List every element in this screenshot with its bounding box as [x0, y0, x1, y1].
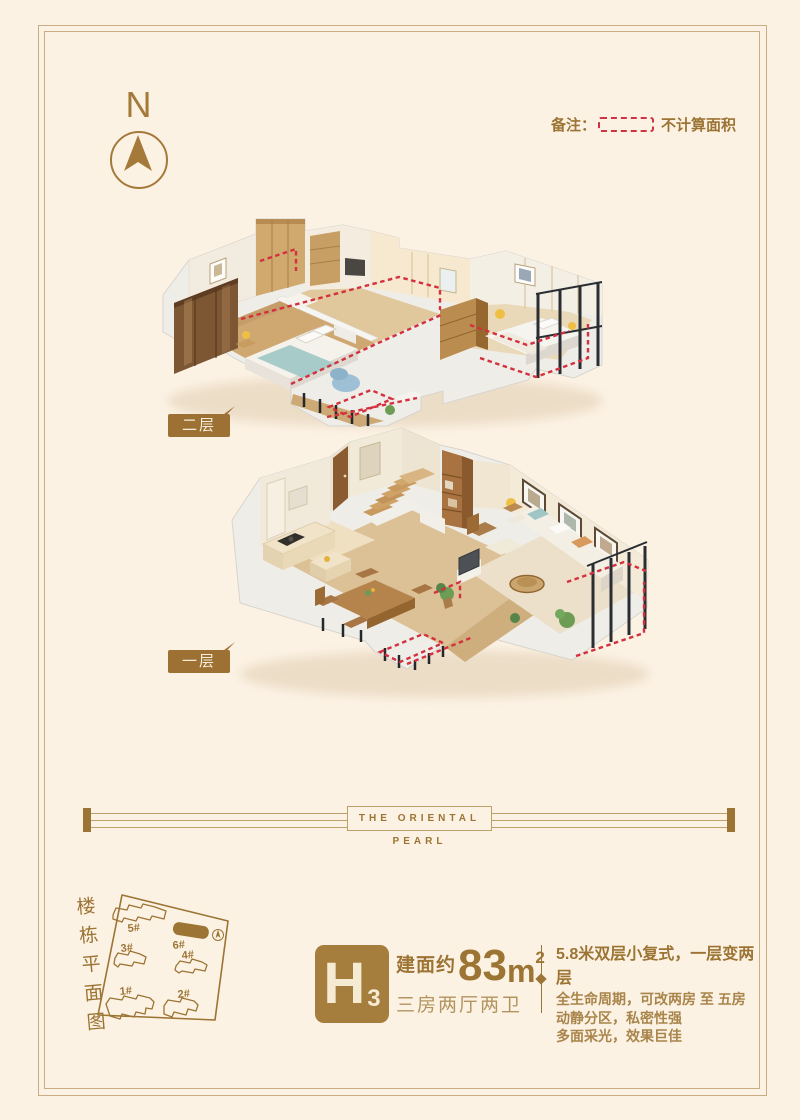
description-line: 全生命周期，可改两房 至 五房 [556, 992, 756, 1007]
unit-description: 5.8米双层小复式，一层变两层 全生命周期，可改两房 至 五房 动静分区，私密性… [556, 940, 756, 1044]
unit-area-block: 建面约 83 m 2 三房两厅两卫 [396, 948, 545, 1017]
divider-left-block [83, 808, 91, 832]
lower-floor-plan-illustration [215, 412, 680, 707]
mini-compass-icon [216, 930, 221, 939]
area-unit: m [507, 958, 535, 984]
description-line: 5.8米双层小复式，一层变两层 [556, 940, 756, 988]
upper-floor-plan-illustration [140, 198, 630, 440]
note-row: 备注： 不计算面积 [551, 114, 736, 135]
lower-floor-badge: 一层 [168, 650, 230, 673]
building-label: 4# [181, 949, 194, 962]
compass-north-letter: N [108, 84, 170, 126]
building-label: 5# [127, 922, 140, 935]
compass-arrow-icon [110, 128, 170, 188]
site-plan-map: 5# 6# 3# 4# 1# 2# [70, 878, 260, 1043]
note-text: 不计算面积 [661, 114, 736, 135]
note-label: 备注： [551, 114, 596, 135]
divider-brand-text: THE ORIENTAL PEARL [347, 806, 492, 831]
divider-right-block [727, 808, 735, 832]
description-line: 多面采光，效果巨佳 [556, 1029, 756, 1044]
unit-code-sub: 3 [367, 985, 380, 1013]
highlighted-building-6 [172, 921, 210, 939]
building-label: 2# [177, 988, 190, 1001]
description-line: 动静分区，私密性强 [556, 1011, 756, 1026]
dashed-area-legend-icon [598, 117, 654, 132]
building-label: 3# [120, 942, 133, 955]
area-value: 83 [458, 948, 507, 984]
unit-rooms: 三房两厅两卫 [396, 990, 545, 1017]
area-prefix: 建面约 [396, 950, 456, 977]
unit-code-box: H 3 [315, 945, 389, 1023]
building-label: 1# [119, 985, 132, 998]
unit-code: H [323, 955, 365, 1013]
brochure-page: N 备注： 不计算面积 [0, 0, 800, 1120]
